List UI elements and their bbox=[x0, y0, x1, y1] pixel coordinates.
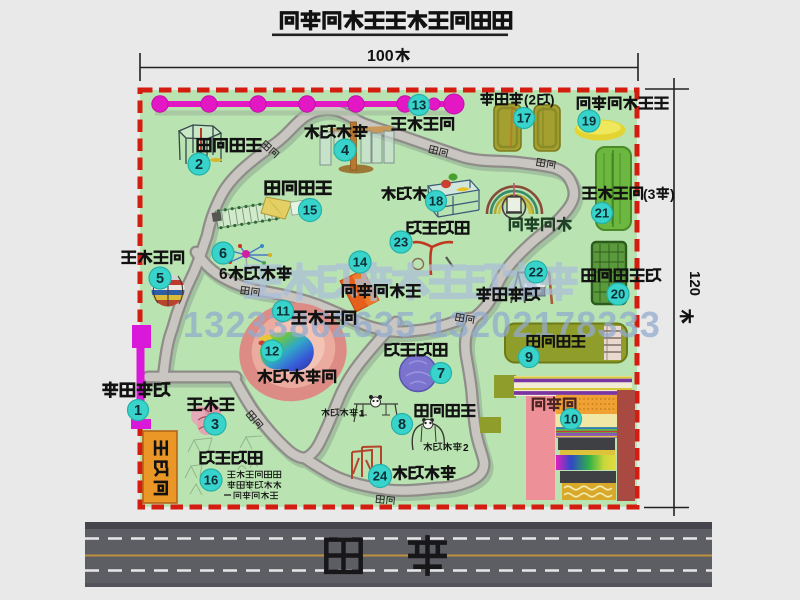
svg-text:(3: (3 bbox=[643, 186, 656, 202]
svg-text:17: 17 bbox=[517, 111, 531, 126]
svg-text:120: 120 bbox=[686, 271, 703, 296]
svg-text:100: 100 bbox=[367, 48, 394, 65]
svg-text:4: 4 bbox=[341, 143, 349, 159]
svg-text:23: 23 bbox=[394, 235, 408, 250]
svg-text:9: 9 bbox=[525, 350, 533, 366]
svg-text:1: 1 bbox=[134, 403, 142, 419]
svg-text:22: 22 bbox=[529, 265, 543, 280]
svg-text:13233862635 13202178333: 13233862635 13202178333 bbox=[183, 304, 661, 345]
svg-text:6: 6 bbox=[219, 246, 227, 262]
svg-text:15: 15 bbox=[303, 203, 317, 218]
svg-text:5: 5 bbox=[156, 271, 164, 287]
svg-text:10: 10 bbox=[564, 412, 578, 427]
svg-text:16: 16 bbox=[204, 473, 218, 488]
svg-text:8: 8 bbox=[398, 417, 406, 433]
svg-text:20: 20 bbox=[611, 287, 625, 302]
svg-text:1: 1 bbox=[359, 409, 365, 420]
svg-text:2: 2 bbox=[195, 157, 203, 173]
svg-text:12: 12 bbox=[265, 344, 279, 359]
svg-text:24: 24 bbox=[373, 469, 388, 484]
svg-text:2: 2 bbox=[463, 443, 469, 454]
svg-text:6: 6 bbox=[219, 266, 228, 283]
svg-text:13: 13 bbox=[412, 98, 426, 113]
svg-text:7: 7 bbox=[437, 366, 445, 382]
svg-text:21: 21 bbox=[595, 206, 609, 221]
svg-text:18: 18 bbox=[429, 194, 443, 209]
svg-text:11: 11 bbox=[276, 304, 290, 319]
svg-text:): ) bbox=[670, 186, 675, 202]
svg-text:): ) bbox=[550, 93, 555, 108]
svg-text:3: 3 bbox=[211, 417, 219, 433]
svg-text:14: 14 bbox=[353, 255, 368, 270]
svg-text:19: 19 bbox=[582, 114, 596, 129]
svg-text:(2: (2 bbox=[524, 93, 536, 108]
